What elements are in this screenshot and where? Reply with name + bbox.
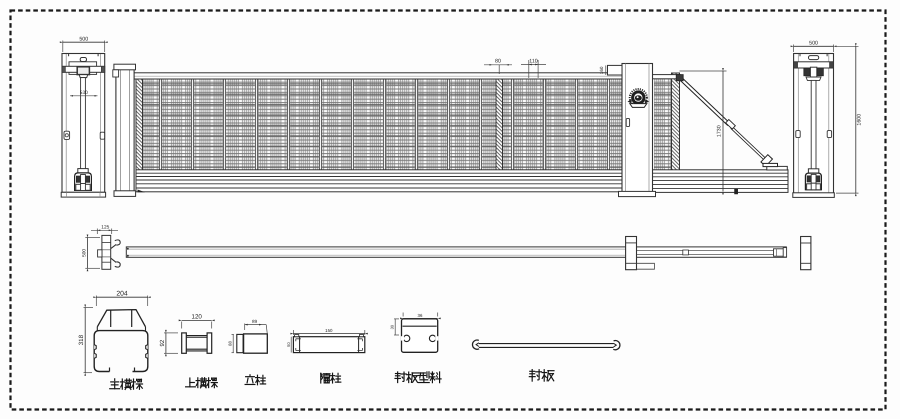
svg-text:92: 92 — [159, 339, 166, 346]
svg-text:80: 80 — [495, 58, 501, 64]
svg-text:1600: 1600 — [856, 114, 862, 126]
svg-text:318: 318 — [78, 334, 85, 345]
svg-text:160: 160 — [599, 66, 604, 74]
svg-text:125: 125 — [101, 225, 109, 231]
svg-text:500: 500 — [79, 36, 88, 42]
svg-text:500: 500 — [809, 41, 818, 47]
svg-text:36: 36 — [418, 313, 423, 318]
svg-text:50: 50 — [286, 342, 291, 347]
svg-text:89: 89 — [252, 319, 258, 324]
svg-text:88: 88 — [228, 341, 233, 346]
svg-text:30: 30 — [389, 324, 394, 329]
svg-text:1730: 1730 — [716, 125, 722, 137]
svg-text:500: 500 — [82, 249, 88, 257]
svg-text:530: 530 — [80, 90, 88, 96]
svg-text:120: 120 — [192, 314, 203, 321]
svg-text:150: 150 — [325, 328, 333, 333]
svg-text:110: 110 — [529, 58, 537, 64]
svg-text:204: 204 — [116, 290, 128, 297]
